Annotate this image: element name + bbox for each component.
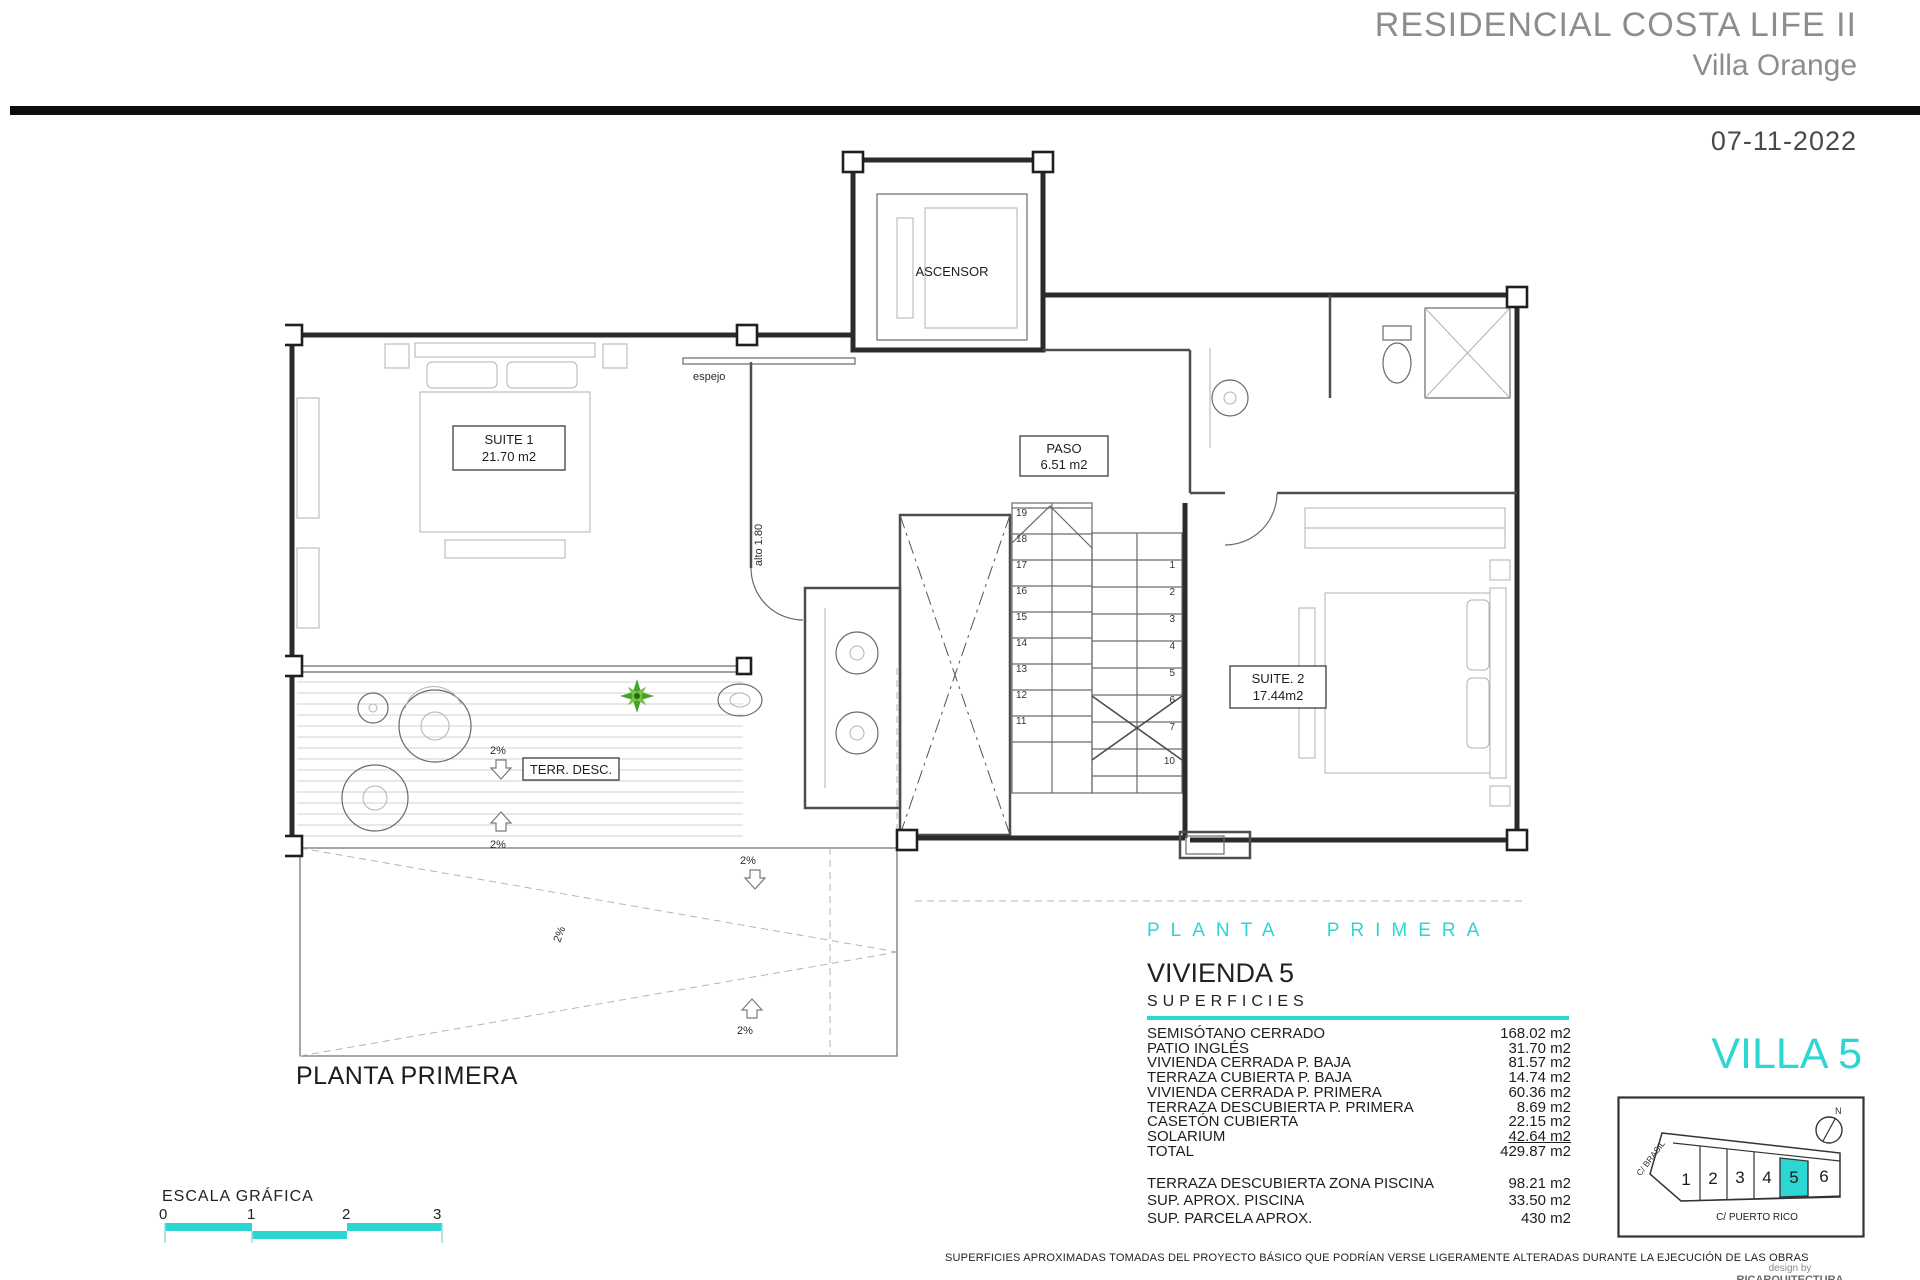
slope-label: 2% bbox=[490, 745, 506, 757]
title-divider-bar bbox=[10, 106, 1920, 115]
stair-number: 16 bbox=[1016, 586, 1028, 597]
stair-number: 14 bbox=[1016, 638, 1028, 649]
mirror-label: espejo bbox=[693, 371, 725, 383]
elevator-label: ASCENSOR bbox=[916, 264, 989, 279]
plot-number: 2 bbox=[1708, 1169, 1717, 1188]
stair-number: 11 bbox=[1016, 716, 1027, 727]
design-by-label: design by bbox=[1710, 1263, 1870, 1274]
slope-arrow-down-icon bbox=[745, 870, 765, 889]
slope-label: 2% bbox=[740, 855, 756, 867]
table-row: TERRAZA DESCUBIERTA ZONA PISCINA98.21 m2 bbox=[1147, 1175, 1571, 1192]
row-label: TOTAL bbox=[1147, 1145, 1194, 1160]
row-value: 33.50 m2 bbox=[1508, 1192, 1571, 1209]
project-subtitle: Villa Orange bbox=[1375, 49, 1857, 83]
stair-number: 15 bbox=[1016, 612, 1028, 623]
suite1-label: SUITE 1 21.70 m2 bbox=[453, 426, 565, 470]
stair-number: 2 bbox=[1169, 587, 1175, 598]
pillars bbox=[285, 152, 1527, 856]
cyan-rule bbox=[1147, 1016, 1569, 1020]
surfaces-section-title: SUPERFICIES bbox=[1147, 993, 1309, 1011]
sheet: RESIDENCIAL COSTA LIFE II Villa Orange 0… bbox=[0, 0, 1920, 1280]
row-label: SUP. APROX. PISCINA bbox=[1147, 1192, 1304, 1209]
slope-arrow-up-icon bbox=[742, 999, 762, 1018]
solarium-area: 2% 2% 2% bbox=[300, 848, 897, 1056]
terrace-label: TERR. DESC. bbox=[523, 758, 619, 780]
stair-number: 6 bbox=[1169, 695, 1175, 706]
door-arc bbox=[751, 568, 803, 620]
scale-tick: 0 bbox=[159, 1206, 167, 1223]
slope-label: 2% bbox=[737, 1025, 753, 1037]
slope-arrow-down-icon bbox=[491, 760, 511, 779]
site-plan: N 1 2 3 4 5 6 C/ BRASIL C/ PUERTO RICO bbox=[1617, 1096, 1865, 1238]
floor-heading: PLANTA PRIMERA bbox=[1147, 920, 1490, 942]
stair-number: 3 bbox=[1169, 614, 1175, 625]
table-row: SUP. APROX. PISCINA33.50 m2 bbox=[1147, 1192, 1571, 1209]
slope-arrow-up-icon bbox=[491, 812, 511, 831]
stair-number: 7 bbox=[1169, 722, 1175, 733]
terrace-area: 2% TERR. DESC. 2% bbox=[292, 666, 747, 851]
svg-text:17.44m2: 17.44m2 bbox=[1253, 688, 1304, 703]
design-credit: design by RICARQUITECTURA bbox=[1710, 1263, 1870, 1280]
stair-number: 18 bbox=[1016, 534, 1028, 545]
elevator-room: ASCENSOR bbox=[853, 160, 1043, 350]
row-value: 429.87 m2 bbox=[1500, 1145, 1571, 1160]
plan-caption: PLANTA PRIMERA bbox=[296, 1062, 518, 1091]
plot-number: 1 bbox=[1681, 1170, 1690, 1189]
plant-icon bbox=[619, 678, 656, 715]
svg-text:SUITE 1: SUITE 1 bbox=[484, 432, 533, 447]
plot-number: 4 bbox=[1762, 1168, 1771, 1187]
landing-detail bbox=[1180, 832, 1250, 858]
stair-number: 13 bbox=[1016, 664, 1028, 675]
scale-tick: 1 bbox=[247, 1206, 255, 1223]
row-value: 98.21 m2 bbox=[1508, 1175, 1571, 1192]
project-title: RESIDENCIAL COSTA LIFE II bbox=[1375, 6, 1857, 45]
villa-title: VILLA 5 bbox=[1617, 1030, 1862, 1079]
surfaces-table: SEMISÓTANO CERRADO168.02 m2 PATIO INGLÉS… bbox=[1147, 1027, 1571, 1159]
row-value: 430 m2 bbox=[1521, 1210, 1571, 1227]
svg-text:PASO: PASO bbox=[1046, 441, 1081, 456]
suite2-wing bbox=[1045, 295, 1517, 840]
door-arc bbox=[1225, 493, 1277, 545]
slope-label: 2% bbox=[552, 925, 569, 944]
surfaces-extra-table: TERRAZA DESCUBIERTA ZONA PISCINA98.21 m2… bbox=[1147, 1175, 1571, 1227]
bathroom-center bbox=[718, 588, 900, 808]
scale-label: ESCALA GRÁFICA bbox=[162, 1186, 314, 1205]
stair-number: 4 bbox=[1169, 641, 1175, 652]
stair-number: 12 bbox=[1016, 690, 1028, 701]
svg-text:TERR. DESC.: TERR. DESC. bbox=[530, 762, 612, 777]
plot-number: 6 bbox=[1819, 1167, 1828, 1186]
disclaimer: SUPERFICIES APROXIMADAS TOMADAS DEL PROY… bbox=[945, 1252, 1785, 1264]
sheet-date: 07-11-2022 bbox=[1711, 126, 1857, 157]
slope-label: 2% bbox=[490, 839, 506, 851]
stair-number: 19 bbox=[1016, 508, 1028, 519]
street-puerto-rico-label: C/ PUERTO RICO bbox=[1716, 1212, 1798, 1223]
svg-text:21.70 m2: 21.70 m2 bbox=[482, 449, 536, 464]
scale-bar: ESCALA GRÁFICA 0 1 2 3 bbox=[150, 1183, 470, 1245]
suite1-furniture bbox=[297, 343, 627, 628]
stair-number: 5 bbox=[1169, 668, 1175, 679]
stair-number: 10 bbox=[1164, 756, 1176, 767]
svg-text:SUITE. 2: SUITE. 2 bbox=[1252, 671, 1305, 686]
scale-segments bbox=[165, 1223, 442, 1243]
svg-text:6.51 m2: 6.51 m2 bbox=[1041, 457, 1088, 472]
header: RESIDENCIAL COSTA LIFE II Villa Orange bbox=[1375, 6, 1857, 83]
studio-name: RICARQUITECTURA bbox=[1710, 1274, 1870, 1280]
table-row: SUP. PARCELA APROX.430 m2 bbox=[1147, 1210, 1571, 1227]
stair-number: 17 bbox=[1016, 560, 1028, 571]
row-label: TERRAZA DESCUBIERTA ZONA PISCINA bbox=[1147, 1175, 1434, 1192]
table-row: TOTAL429.87 m2 bbox=[1147, 1145, 1571, 1160]
suite2-label: SUITE. 2 17.44m2 bbox=[1230, 666, 1326, 708]
row-label: SUP. PARCELA APROX. bbox=[1147, 1210, 1312, 1227]
compass-n-label: N bbox=[1835, 1106, 1842, 1116]
unit-title: VIVIENDA 5 bbox=[1147, 958, 1294, 989]
plot-number: 5 bbox=[1789, 1168, 1798, 1187]
height-annotation: alto 1.80 bbox=[753, 524, 765, 566]
stair-void bbox=[900, 515, 1010, 835]
paso-label: PASO 6.51 m2 bbox=[1020, 436, 1108, 476]
plot-number: 3 bbox=[1735, 1168, 1744, 1187]
staircase: 19 18 17 16 15 14 13 12 11 1 2 3 4 5 6 7 bbox=[900, 503, 1185, 838]
scale-tick: 3 bbox=[433, 1206, 441, 1223]
floor-plan: .w{stroke:#2b2b2b;stroke-width:5;fill:no… bbox=[285, 148, 1535, 1108]
stair-number: 1 bbox=[1169, 560, 1175, 571]
scale-tick: 2 bbox=[342, 1206, 350, 1223]
